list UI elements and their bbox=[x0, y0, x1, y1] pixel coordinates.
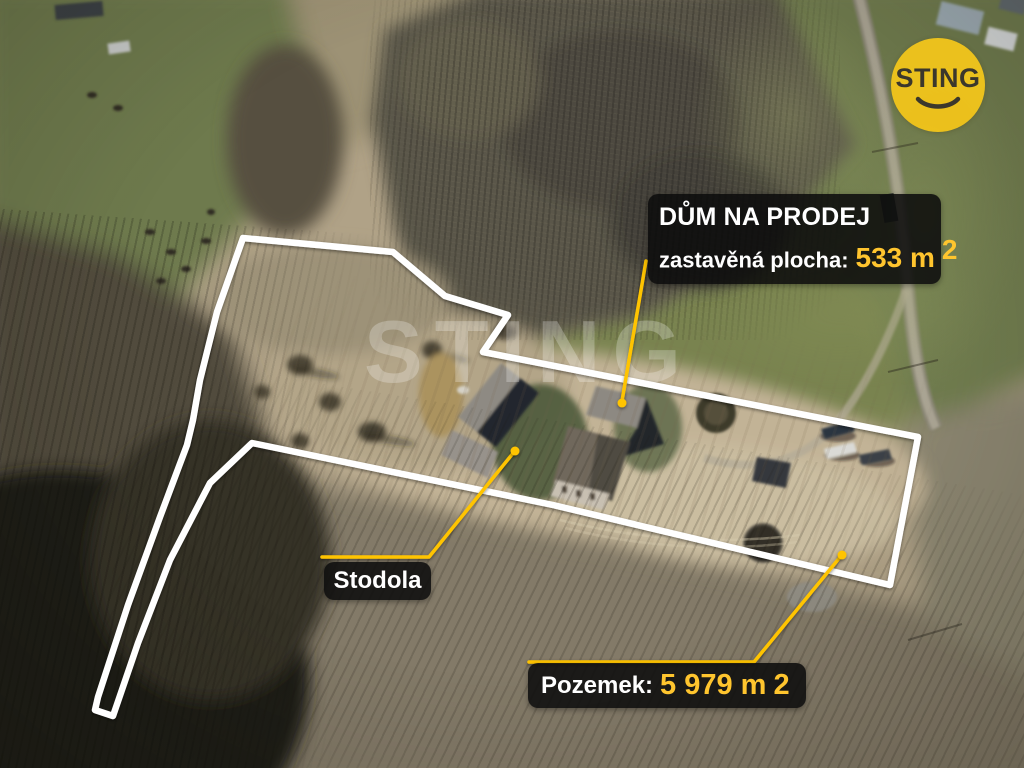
house-connector-dot bbox=[618, 399, 627, 408]
land-area-label: Pozemek:5 979 m2 bbox=[528, 663, 806, 708]
land-label-sup: 2 bbox=[773, 669, 789, 702]
annotation-overlay bbox=[0, 0, 1024, 768]
sting-logo-badge: STING bbox=[891, 38, 985, 132]
house-info-label: DŮM NA PRODEJ zastavěná plocha:533 m2 bbox=[648, 194, 941, 284]
land-label-value: 5 979 m bbox=[660, 669, 766, 702]
house-area-value: 533 m bbox=[856, 242, 935, 273]
barn-connector-dot bbox=[511, 447, 520, 456]
house-label-title: DŮM NA PRODEJ bbox=[659, 203, 929, 231]
aerial-listing-photo: STING DŮM NA PRODEJ zastavěná plocha:533… bbox=[0, 0, 1024, 768]
house-area-text: zastavěná plocha: bbox=[659, 247, 849, 272]
barn-connector-line bbox=[322, 452, 514, 557]
house-area-sup: 2 bbox=[942, 234, 958, 265]
house-label-area: zastavěná plocha:533 m2 bbox=[659, 233, 929, 275]
sting-logo-text: STING bbox=[895, 65, 980, 92]
barn-label-text: Stodola bbox=[334, 567, 422, 595]
barn-label: Stodola bbox=[324, 562, 431, 600]
land-label-prefix: Pozemek: bbox=[541, 672, 653, 700]
smile-icon bbox=[914, 95, 962, 111]
property-boundary-outline bbox=[95, 238, 918, 716]
land-connector-line bbox=[529, 556, 841, 662]
land-connector-dot bbox=[838, 551, 847, 560]
